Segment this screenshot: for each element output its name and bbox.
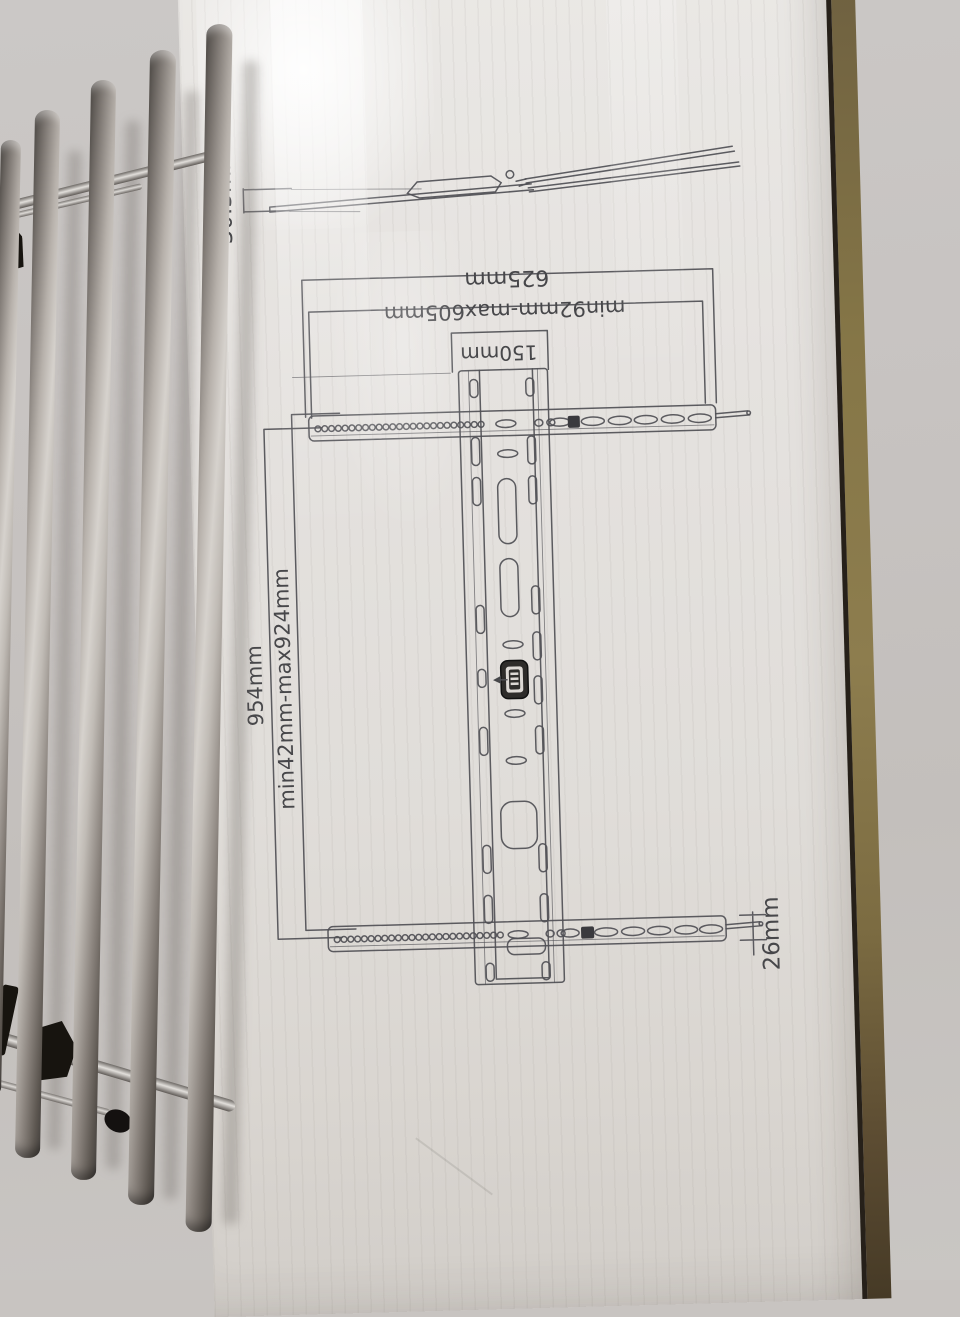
side-profile-drawing bbox=[242, 146, 740, 215]
tv-mount-box: 625mm min92mm-max605mm 150mm 954mm min42… bbox=[178, 0, 887, 1317]
vesa-hole-row-bottom bbox=[334, 932, 503, 943]
dimension-label-center-width: 150mm bbox=[460, 340, 538, 366]
dimension-label-rail-thickness: 26mm bbox=[758, 896, 786, 971]
center-column bbox=[458, 368, 564, 984]
tv-mount-dimension-diagram: 625mm min92mm-max605mm 150mm 954mm min42… bbox=[178, 0, 887, 1317]
dimension-label-width-range: min92mm-max605mm bbox=[384, 295, 626, 326]
height-dimensions: 954mm min42mm-max924mm bbox=[235, 373, 467, 940]
vesa-hole-row-top bbox=[315, 421, 484, 432]
width-dimensions: 625mm min92mm-max605mm 150mm bbox=[302, 260, 717, 418]
dimension-label-total-width: 625mm bbox=[464, 264, 550, 291]
bottom-wall-rail: 26mm bbox=[327, 896, 785, 983]
